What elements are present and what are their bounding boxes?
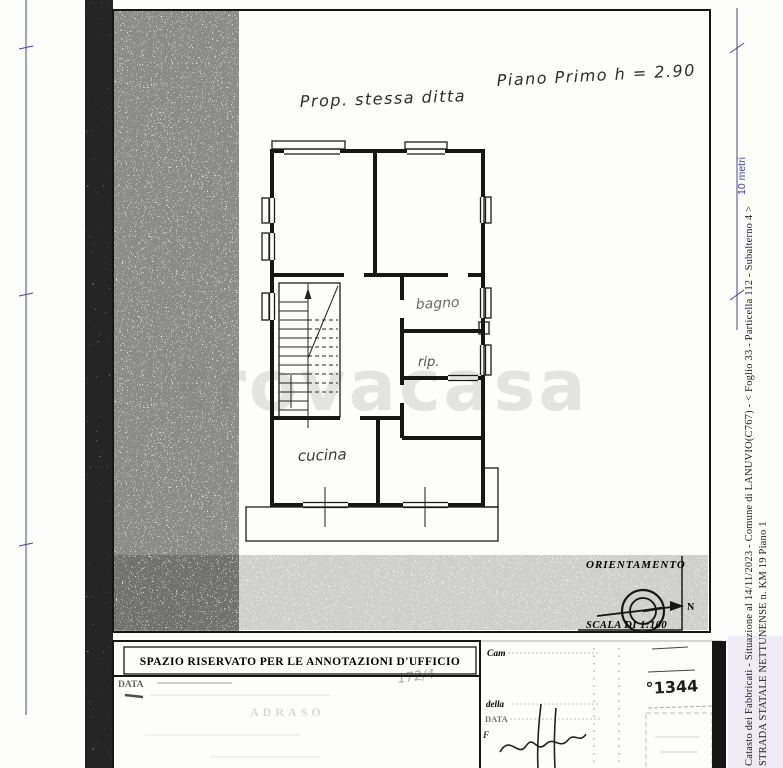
left-ruler [19, 0, 33, 715]
faint-stamp-text: ADRASO [250, 705, 325, 719]
protocol-number: °1344 [645, 676, 698, 698]
prop-note: Prop. stessa ditta [299, 86, 466, 111]
room-label-bagno: bagno [415, 295, 460, 313]
annotations-header: SPAZIO RISERVATO PER LE ANNOTAZIONI D'UF… [140, 656, 460, 668]
scale-label: SCALA DI 1:100 [586, 620, 667, 631]
page-edge-tint [728, 636, 783, 768]
form-row3-label: DATA [485, 714, 509, 724]
room-label-cucina: cucina [298, 445, 347, 465]
floor-plan: bagno rip. cucina [246, 141, 498, 541]
office-form: Cam °1344 della DATA F [480, 641, 726, 768]
stair-direction-arrow-icon [305, 288, 312, 299]
form-row2-label: della [486, 699, 504, 709]
ruler-label: 10 metri [736, 157, 748, 195]
date-label: DATA [118, 680, 144, 690]
signature [500, 704, 586, 768]
north-label: N [687, 602, 695, 613]
sidebar-line2: STRADA STATALE NETTUNENSE n. KM 19 Piano… [758, 521, 769, 766]
orientation-title: ORIENTAMENTO [586, 559, 686, 571]
sidebar-line1: Catasto dei Fabbricati - Situazione al 1… [744, 206, 755, 766]
form-row1-label: Cam [487, 649, 505, 659]
watermark-text: trovacasa [175, 345, 589, 427]
plan-sheet-svg: 10 metri Prop. stessa ditta Piano Primo … [0, 0, 783, 768]
scanned-cadastral-plan-page: 10 metri Prop. stessa ditta Piano Primo … [0, 0, 783, 768]
annotations-box: SPAZIO RISERVATO PER LE ANNOTAZIONI D'UF… [113, 641, 480, 768]
handwritten-notes: Prop. stessa ditta Piano Primo h = 2.90 [299, 61, 696, 111]
form-right-bar [712, 641, 726, 768]
faint-stamp-box [646, 706, 712, 768]
form-row4-label: F [482, 730, 489, 740]
room-label-rip: rip. [418, 355, 439, 370]
handwritten-ref: 172/4 [396, 667, 435, 687]
floor-note: Piano Primo h = 2.90 [496, 61, 696, 90]
